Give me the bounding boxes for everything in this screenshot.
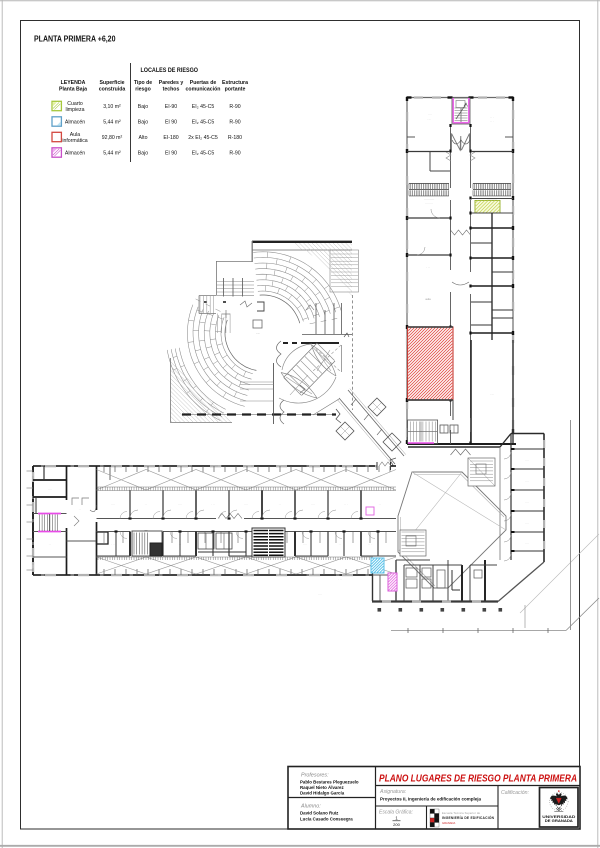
svg-text:···· ····: ···· ···· — [425, 202, 433, 205]
svg-text:PLANTA PRIMERA +6,20: PLANTA PRIMERA +6,20 — [34, 34, 116, 44]
svg-text:···: ··· — [256, 332, 259, 336]
svg-text:Lucía Casado Consuegra: Lucía Casado Consuegra — [300, 817, 353, 822]
svg-text:EI₂ 45-C5: EI₂ 45-C5 — [192, 120, 215, 126]
svg-text:Calificación:: Calificación: — [501, 790, 530, 796]
svg-text:aula: aula — [425, 297, 431, 301]
svg-text:Bajo: Bajo — [138, 151, 148, 157]
svg-text:· ··: · ·· — [211, 502, 215, 506]
svg-text:EI₂ 45-C5: EI₂ 45-C5 — [192, 151, 215, 157]
svg-text:R-180: R-180 — [228, 135, 242, 141]
svg-text:2x EI₂ 45-C5: 2x EI₂ 45-C5 — [188, 135, 218, 141]
svg-text:R-90: R-90 — [229, 151, 240, 157]
svg-text:····: ···· — [525, 459, 529, 462]
svg-text:Escuela Técnica Superior de: Escuela Técnica Superior de — [442, 811, 481, 815]
svg-text:LOCALES DE RIESGO: LOCALES DE RIESGO — [141, 67, 199, 74]
svg-text:· ··: · ·· — [338, 577, 342, 581]
svg-text:· ·: · · — [179, 542, 182, 546]
svg-text:EI 90: EI 90 — [165, 151, 177, 157]
svg-text:· ··: · ·· — [111, 542, 115, 546]
svg-text:Raquel Nieto Álvarez: Raquel Nieto Álvarez — [300, 785, 344, 790]
svg-text:informática: informática — [62, 138, 87, 144]
svg-text:techos: techos — [163, 87, 180, 93]
svg-text:Estructura: Estructura — [222, 80, 248, 86]
svg-text:·· ·: ·· · — [490, 115, 494, 119]
svg-text:riesgo: riesgo — [135, 87, 151, 93]
svg-text:Proyectos II, Ingeniería de ed: Proyectos II, Ingeniería de edificación … — [380, 797, 481, 802]
svg-text:200: 200 — [393, 822, 400, 827]
svg-text:· ·: · · — [279, 502, 282, 506]
svg-text:· ·: · · — [339, 542, 342, 546]
svg-text:Planta Baja: Planta Baja — [59, 87, 87, 93]
svg-text:Alumno:: Alumno: — [300, 804, 321, 810]
svg-text:····: ···· — [525, 542, 529, 545]
svg-text:· ·: · · — [145, 502, 148, 506]
svg-text:·· ·: ·· · — [490, 119, 494, 123]
svg-text:····: ···· — [178, 502, 182, 506]
svg-text:INGENIERÍA DE EDIFICACIÓN: INGENIERÍA DE EDIFICACIÓN — [442, 815, 495, 820]
svg-text:5,44 m²: 5,44 m² — [103, 151, 121, 157]
svg-text:· ···: · ··· — [427, 117, 432, 121]
svg-text:3,10 m²: 3,10 m² — [103, 104, 121, 110]
svg-text:Tipo de: Tipo de — [134, 80, 152, 86]
svg-text:EI 90: EI 90 — [165, 120, 177, 126]
svg-text:EI-90: EI-90 — [165, 104, 178, 110]
svg-text:· ·: · · — [379, 502, 382, 506]
svg-text:EI₂ 45-C5: EI₂ 45-C5 — [192, 104, 215, 110]
svg-text:····: ···· — [525, 522, 529, 525]
svg-text:· ···: · ··· — [490, 393, 494, 396]
svg-text:Pablo Bestares Pleguezuelo: Pablo Bestares Pleguezuelo — [300, 780, 359, 785]
svg-text:Bajo: Bajo — [138, 120, 148, 126]
svg-text:UNIVERSIDAD: UNIVERSIDAD — [542, 815, 576, 819]
svg-text:Profesores:: Profesores: — [301, 773, 329, 779]
svg-text:· ··: · ·· — [426, 265, 430, 269]
svg-text:EI-180: EI-180 — [163, 135, 178, 141]
svg-text:GRANADA: GRANADA — [442, 821, 455, 825]
svg-text:····: ···· — [48, 487, 52, 491]
svg-text:Superficie: Superficie — [99, 80, 124, 86]
svg-text:92,80 m²: 92,80 m² — [102, 135, 123, 141]
svg-text:· ·: · · — [49, 542, 52, 546]
svg-text:····: ···· — [244, 502, 248, 506]
svg-text:Puertas de: Puertas de — [190, 80, 217, 86]
svg-text:limpieza: limpieza — [65, 107, 84, 113]
svg-text:····: ···· — [311, 502, 315, 506]
svg-text:comunicación: comunicación — [186, 87, 221, 93]
svg-text:····: ···· — [428, 112, 432, 116]
svg-text:LEYENDA: LEYENDA — [61, 80, 86, 86]
svg-text:····: ···· — [525, 480, 529, 483]
svg-text:R-90: R-90 — [229, 104, 240, 110]
svg-text:PLANO LUGARES DE RIESGO PLANTA: PLANO LUGARES DE RIESGO PLANTA PRIMERA — [379, 774, 577, 785]
svg-text:Paredes y: Paredes y — [159, 80, 184, 86]
svg-text:····: ···· — [318, 592, 322, 596]
svg-text:portante: portante — [225, 87, 246, 93]
svg-text:Asignatura:: Asignatura: — [379, 789, 407, 795]
svg-text:Almacén: Almacén — [65, 151, 85, 157]
svg-text:David Hidalgo García: David Hidalgo García — [300, 791, 345, 796]
svg-text:Bajo: Bajo — [138, 104, 148, 110]
svg-text:5,44 m²: 5,44 m² — [103, 120, 121, 126]
svg-text:Alto: Alto — [139, 135, 148, 141]
svg-text:R-90: R-90 — [229, 120, 240, 126]
svg-text:·· ·: ·· · — [344, 502, 348, 506]
svg-text:construida: construida — [99, 87, 126, 93]
svg-text:· ··: · ·· — [490, 247, 494, 251]
svg-text:Almacén: Almacén — [65, 120, 85, 126]
svg-text:DE GRANADA: DE GRANADA — [545, 819, 574, 823]
svg-text:····· ·····: ····· ····· — [424, 197, 435, 201]
svg-text:····: ···· — [303, 542, 307, 546]
svg-text:· ·: · · — [79, 507, 82, 511]
svg-text:·· ·: ·· · — [368, 542, 372, 546]
svg-text:David Solano Ruiz: David Solano Ruiz — [300, 811, 339, 816]
svg-text:····: ···· — [525, 501, 529, 504]
svg-text:····: ···· — [111, 502, 115, 506]
